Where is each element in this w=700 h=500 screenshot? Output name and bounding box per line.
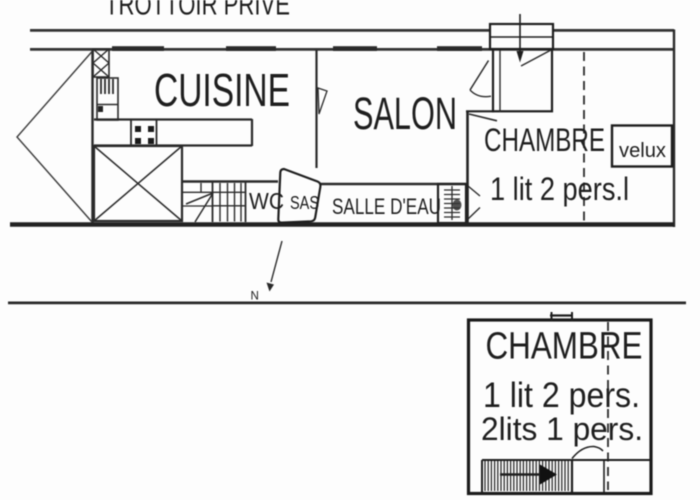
- svg-text:SAS: SAS: [290, 193, 319, 214]
- svg-text:WC: WC: [249, 188, 284, 214]
- svg-text:SALON: SALON: [353, 88, 457, 139]
- svg-text:TROTTOIR PRIVE: TROTTOIR PRIVE: [105, 0, 290, 22]
- svg-text:N: N: [251, 290, 259, 303]
- svg-text:velux: velux: [619, 140, 666, 162]
- svg-text:1 lit 2 pers.l: 1 lit 2 pers.l: [490, 171, 629, 207]
- svg-text:CHAMBRE: CHAMBRE: [486, 325, 643, 368]
- svg-text:SALLE D'EAU: SALLE D'EAU: [332, 194, 441, 219]
- svg-text:2lits 1 pers.: 2lits 1 pers.: [481, 410, 643, 447]
- svg-text:CUISINE: CUISINE: [154, 64, 290, 116]
- svg-text:CHAMBRE: CHAMBRE: [484, 122, 605, 158]
